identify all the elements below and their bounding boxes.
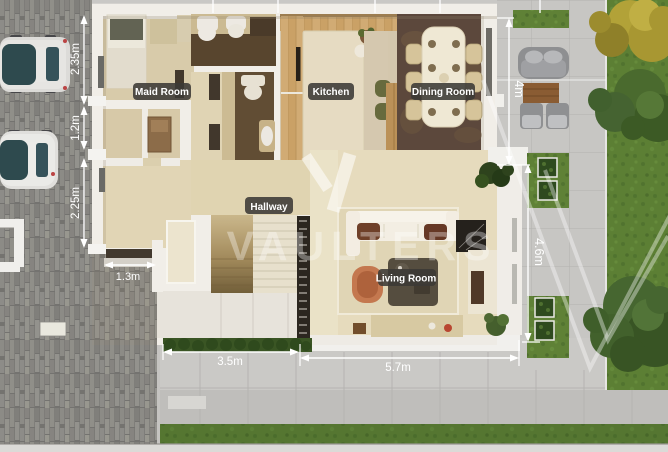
svg-text:Hallway: Hallway — [250, 202, 288, 213]
svg-text:Dining Room: Dining Room — [412, 87, 474, 98]
svg-text:3.5m: 3.5m — [217, 356, 243, 368]
svg-text:4.6m: 4.6m — [532, 238, 546, 266]
svg-text:4m: 4m — [512, 80, 526, 97]
svg-text:2.25m: 2.25m — [70, 187, 82, 219]
svg-text:2.35m: 2.35m — [70, 43, 82, 75]
svg-text:Maid Room: Maid Room — [135, 87, 189, 98]
svg-text:1.3m: 1.3m — [116, 271, 140, 283]
svg-text:Living Room: Living Room — [376, 274, 437, 285]
svg-text:1.2m: 1.2m — [70, 115, 82, 141]
svg-text:VAULTERS: VAULTERS — [227, 223, 498, 269]
svg-text:Kitchen: Kitchen — [313, 87, 350, 98]
svg-text:5.7m: 5.7m — [385, 362, 411, 374]
